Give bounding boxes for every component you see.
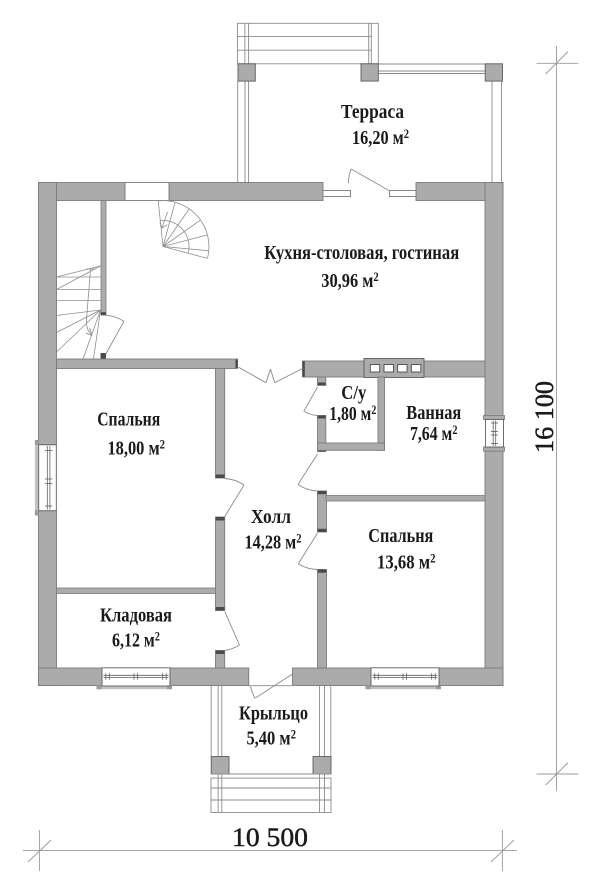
svg-text:10 500: 10 500 — [232, 823, 308, 852]
svg-text:С/у: С/у — [341, 382, 366, 404]
svg-text:16 100: 16 100 — [530, 381, 559, 453]
svg-text:1,80 м2: 1,80 м2 — [329, 402, 376, 425]
svg-text:5,40 м2: 5,40 м2 — [246, 727, 296, 750]
svg-text:Кухня-столовая, гостиная: Кухня-столовая, гостиная — [264, 242, 459, 264]
svg-text:18,00 м2: 18,00 м2 — [107, 437, 165, 460]
svg-text:6,12 м2: 6,12 м2 — [112, 629, 160, 652]
svg-text:Спальня: Спальня — [97, 409, 160, 431]
svg-text:7,64 м2: 7,64 м2 — [410, 422, 458, 445]
svg-text:Кладовая: Кладовая — [100, 605, 172, 627]
svg-text:16,20 м2: 16,20 м2 — [352, 126, 409, 149]
svg-text:Крыльцо: Крыльцо — [239, 703, 308, 725]
svg-text:30,96 м2: 30,96 м2 — [321, 269, 379, 292]
svg-text:14,28 м2: 14,28 м2 — [245, 531, 302, 554]
svg-text:Спальня: Спальня — [368, 525, 433, 547]
svg-text:Ванная: Ванная — [406, 402, 461, 424]
svg-text:Терраса: Терраса — [341, 101, 404, 123]
svg-text:13,68 м2: 13,68 м2 — [377, 551, 436, 574]
svg-text:Холл: Холл — [251, 506, 291, 528]
